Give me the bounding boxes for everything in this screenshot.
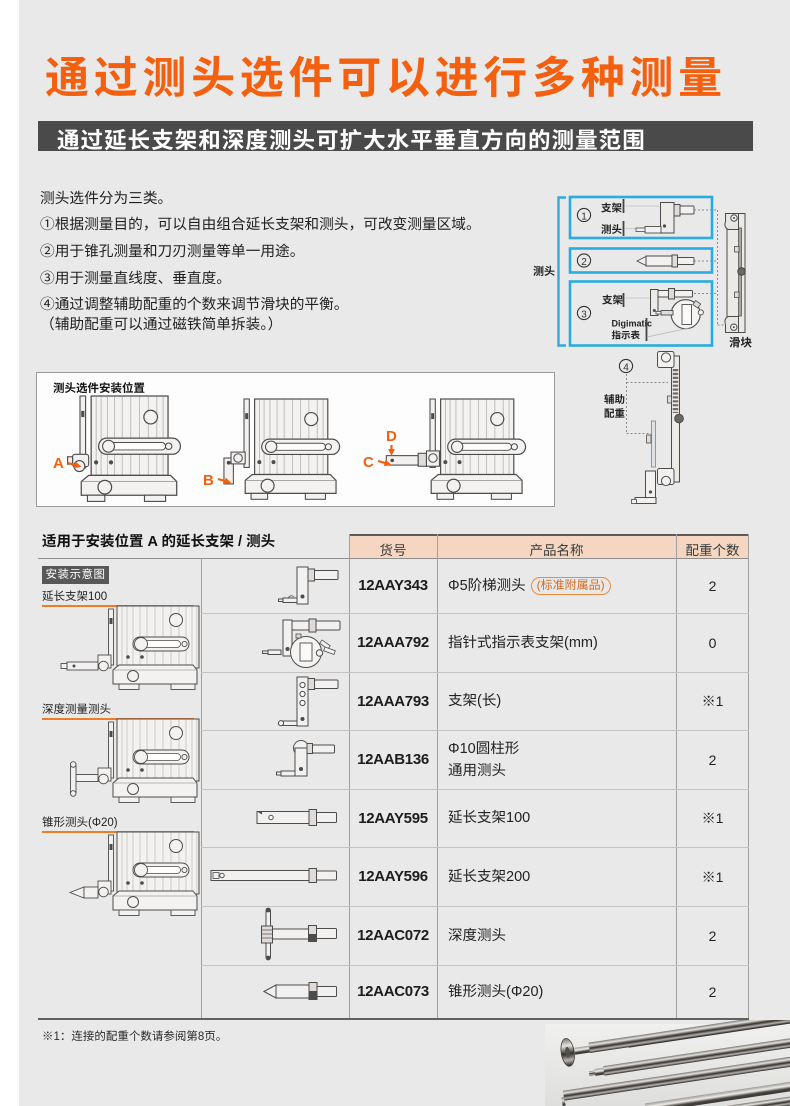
svg-text:支架: 支架 (602, 295, 623, 307)
svg-text:B: B (203, 472, 214, 489)
svg-text:辅助: 辅助 (604, 394, 625, 406)
svg-text:C: C (363, 454, 374, 471)
svg-text:4: 4 (623, 363, 629, 374)
svg-text:测头: 测头 (533, 265, 555, 278)
svg-text:支架: 支架 (601, 203, 622, 215)
svg-text:指示表: 指示表 (612, 330, 641, 342)
svg-text:测头: 测头 (601, 224, 622, 236)
svg-text:2: 2 (581, 257, 587, 268)
svg-text:3: 3 (581, 310, 587, 321)
svg-text:1: 1 (581, 212, 587, 223)
svg-text:D: D (386, 428, 397, 445)
svg-text:滑块: 滑块 (729, 337, 752, 350)
svg-text:配重: 配重 (604, 408, 625, 420)
svg-text:A: A (53, 455, 64, 472)
